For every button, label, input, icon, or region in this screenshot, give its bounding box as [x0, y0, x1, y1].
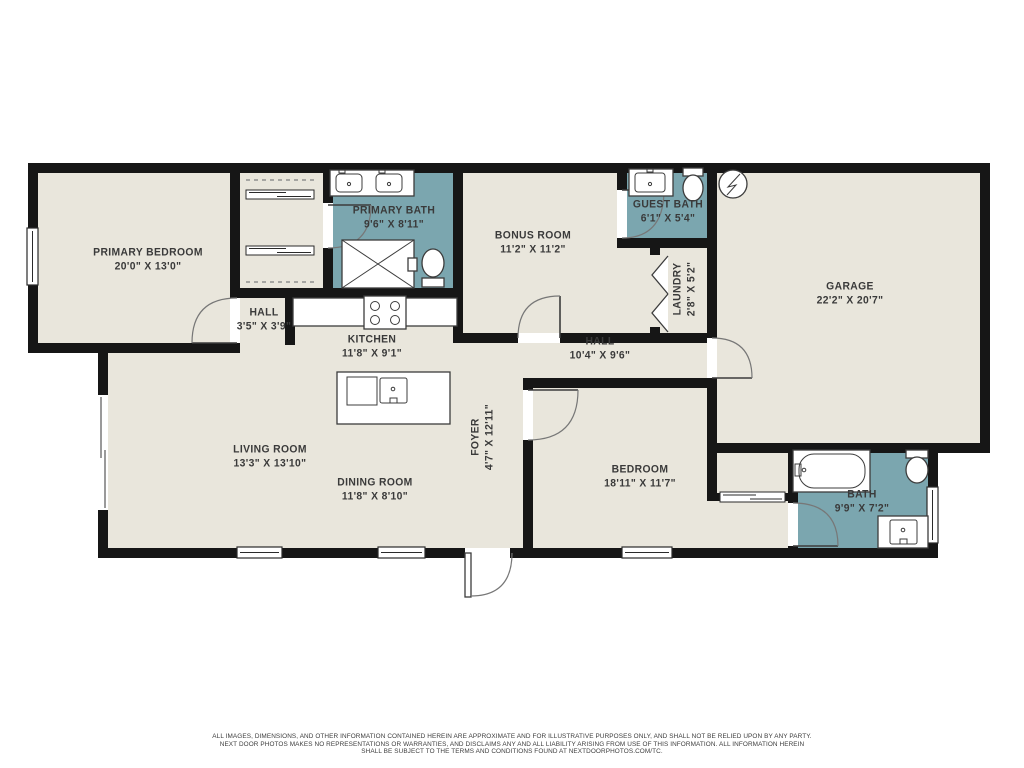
room-label-foyer: FOYER4'7" X 12'11" — [470, 402, 497, 472]
toilet-icon — [422, 249, 444, 287]
disclaimer-line-1: ALL IMAGES, DIMENSIONS, AND OTHER INFORM… — [132, 733, 892, 741]
room-name: BEDROOM — [604, 464, 676, 478]
range-stove-icon — [364, 296, 406, 329]
room-label-bonus-room: BONUS ROOM11'2" X 11'2" — [493, 230, 574, 257]
floor-plan-drawing — [0, 0, 1024, 768]
room-name: PRIMARY BEDROOM — [93, 247, 203, 261]
room-dims: 20'0" X 13'0" — [93, 260, 203, 274]
wall-laundry-left-top — [650, 238, 660, 255]
room-label-hall-small: HALL3'5" X 3'9" — [235, 307, 293, 334]
room-label-primary-bath: PRIMARY BATH9'6" X 8'11" — [350, 205, 438, 232]
room-dims: 9'6" X 8'11" — [353, 218, 435, 232]
room-name: LAUNDRY — [672, 262, 686, 317]
room-dims: 22'2" X 20'7" — [817, 294, 884, 308]
wall-bedroom-top — [523, 378, 717, 388]
room-label-primary-bedroom: PRIMARY BEDROOM20'0" X 13'0" — [90, 247, 207, 274]
wall-top — [28, 163, 990, 173]
sliding-closet-door — [246, 190, 314, 199]
disclaimer-text: ALL IMAGES, DIMENSIONS, AND OTHER INFORM… — [132, 733, 892, 756]
vanity-sink-icon — [878, 516, 928, 548]
vanity-sink-icon — [629, 169, 673, 196]
wall-garage-left — [707, 163, 717, 453]
room-name: BONUS ROOM — [495, 230, 571, 244]
room-name: LIVING ROOM — [233, 444, 307, 458]
room-label-kitchen: KITCHEN11'8" X 9'1" — [340, 334, 404, 361]
room-name: FOYER — [470, 404, 484, 470]
room-dims: 6'1" X 5'4" — [633, 212, 703, 226]
wall-garage-right — [980, 163, 990, 453]
wall-primary-bedroom-bottom — [28, 343, 240, 353]
room-label-hall-center: HALL10'4" X 9'6" — [568, 336, 633, 363]
room-label-garage: GARAGE22'2" X 20'7" — [814, 281, 885, 308]
room-label-living-room: LIVING ROOM13'3" X 13'10" — [231, 444, 309, 471]
room-name: BATH — [835, 489, 890, 503]
room-label-bath: BATH9'9" X 7'2" — [833, 489, 891, 516]
room-dims: 2'8" X 5'2" — [685, 262, 699, 317]
room-name: HALL — [570, 336, 631, 350]
room-name: PRIMARY BATH — [353, 205, 435, 219]
wall-bottom — [98, 548, 938, 558]
room-name: HALL — [237, 307, 292, 321]
sliding-glass-door — [98, 395, 108, 510]
wall-guest-bath-bottom — [617, 238, 717, 248]
room-name: KITCHEN — [342, 334, 402, 348]
kitchen-island — [337, 372, 450, 424]
toilet-icon — [683, 168, 703, 201]
room-name: GUEST BATH — [633, 199, 703, 213]
room-dims: 11'8" X 8'10" — [337, 490, 412, 504]
floor-plan-page: PRIMARY BEDROOM20'0" X 13'0" PRIMARY BAT… — [0, 0, 1024, 768]
room-name: GARAGE — [817, 281, 884, 295]
door-swing-icon — [471, 553, 512, 596]
toilet-icon — [906, 450, 928, 483]
room-label-bedroom: BEDROOM18'11" X 11'7" — [602, 464, 678, 491]
wall-laundry-left-bottom — [650, 327, 660, 343]
room-dims: 4'7" X 12'11" — [483, 404, 497, 470]
room-dims: 9'9" X 7'2" — [835, 502, 890, 516]
room-label-guest-bath: GUEST BATH6'1" X 5'4" — [631, 199, 706, 226]
room-dims: 10'4" X 9'6" — [570, 349, 631, 363]
room-dims: 18'11" X 11'7" — [604, 477, 676, 491]
room-label-dining-room: DINING ROOM11'8" X 8'10" — [335, 477, 415, 504]
room-dims: 11'2" X 11'2" — [495, 243, 571, 257]
room-dims: 3'5" X 3'9" — [237, 320, 292, 334]
sliding-closet-door — [720, 492, 785, 502]
entry-door-leaf — [465, 553, 471, 597]
bathtub-icon — [793, 450, 870, 492]
water-heater-icon — [719, 170, 747, 198]
room-dims: 11'8" X 9'1" — [342, 347, 402, 361]
room-label-laundry: LAUNDRY2'8" X 5'2" — [672, 260, 699, 318]
room-name: DINING ROOM — [337, 477, 412, 491]
double-vanity-sink-icon — [330, 170, 414, 196]
disclaimer-line-3: SHALL BE SUBJECT TO THE TERMS AND CONDIT… — [132, 748, 892, 756]
wall-bedroom-closet-left — [707, 453, 717, 501]
sliding-closet-door — [246, 246, 314, 255]
shower-icon — [342, 240, 417, 288]
disclaimer-line-2: NEXT DOOR PHOTOS MAKES NO REPRESENTATION… — [132, 741, 892, 749]
wall-primary-bath-bottom — [230, 288, 463, 298]
room-dims: 13'3" X 13'10" — [233, 457, 307, 471]
